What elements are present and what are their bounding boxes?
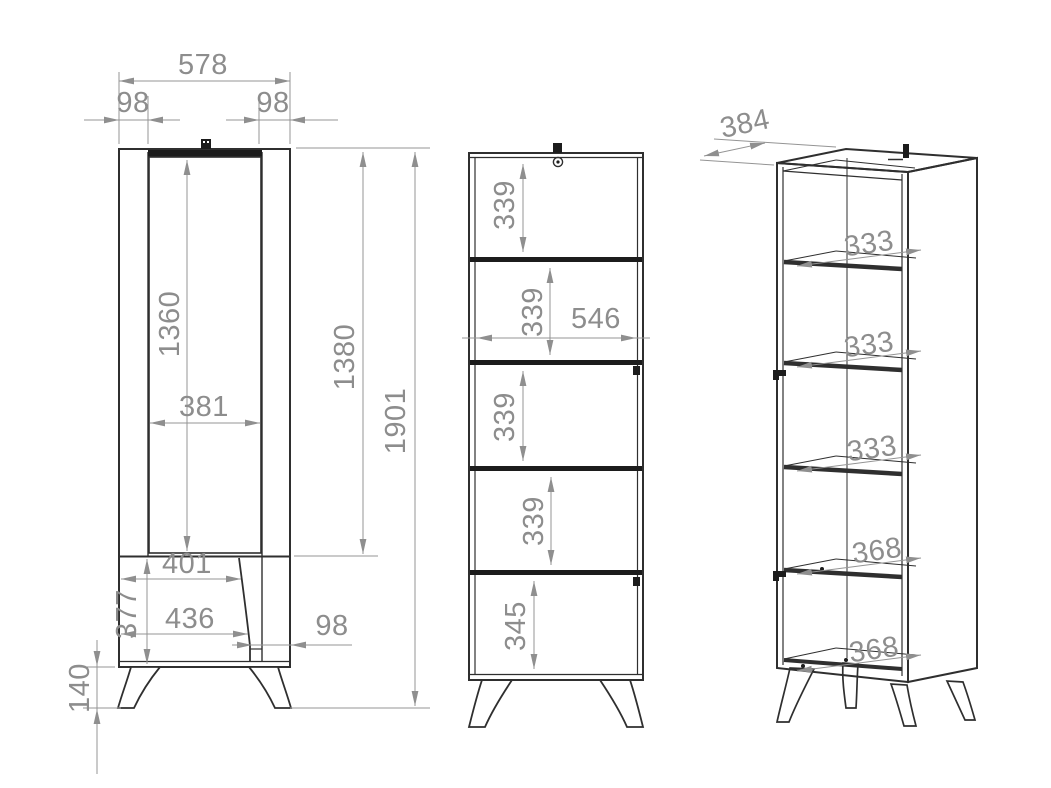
- dim-perspective-shelf-gap-3: 333: [845, 430, 899, 469]
- front-wall-bracket-icon: [201, 139, 211, 149]
- perspective-carcass: [773, 144, 977, 682]
- dim-section-gap-4: 339: [518, 496, 550, 546]
- dim-section-gap-3: 339: [489, 392, 521, 442]
- front-view: 578 98 98 1360 381 1380 1901 401 377 436…: [64, 49, 430, 774]
- shelf-pin-dot: [844, 658, 848, 662]
- dim-front-lower-height: 377: [111, 589, 143, 639]
- dim-front-right-offset: 98: [256, 87, 289, 119]
- dim-front-total-height: 1901: [380, 388, 412, 455]
- perspective-view: 384 333 333 333 368 368: [700, 103, 977, 726]
- section-wall-bracket-icon: [553, 143, 563, 167]
- section-shelf-3: [470, 466, 642, 471]
- section-hinge-plate-upper: [633, 366, 640, 375]
- dim-front-lower-outer-width: 436: [165, 603, 215, 635]
- front-right-leg: [249, 667, 291, 708]
- section-hinge-plate-lower: [633, 577, 640, 586]
- dim-front-left-offset: 98: [116, 87, 149, 119]
- section-shelf-4: [470, 570, 642, 575]
- shelf-pin-dot: [801, 664, 805, 668]
- dim-front-door-height: 1360: [154, 291, 186, 358]
- dim-front-lower-right-offset: 98: [315, 610, 348, 642]
- dim-perspective-shelf-gap-2: 333: [842, 326, 896, 365]
- perspective-legs: [777, 663, 975, 726]
- section-view: 339 339 546 339 339 345: [462, 143, 650, 727]
- drawing-canvas: 578 98 98 1360 381 1380 1901 401 377 436…: [0, 0, 1051, 788]
- section-left-leg: [469, 680, 512, 727]
- section-shelf-2: [470, 360, 642, 365]
- dim-section-gap-2: 339: [517, 287, 549, 337]
- dim-section-gap-1: 339: [489, 180, 521, 230]
- front-door-top-rail: [148, 150, 262, 157]
- section-right-leg: [600, 680, 643, 727]
- dim-perspective-shelf-gap-1: 333: [842, 225, 896, 264]
- dim-front-leg-height: 140: [64, 663, 96, 713]
- dim-perspective-lower-gap-2: 368: [847, 631, 901, 670]
- front-left-leg: [118, 667, 160, 708]
- perspective-dimension-lines: [700, 139, 921, 671]
- technical-drawing: 578 98 98 1360 381 1380 1901 401 377 436…: [0, 0, 1051, 788]
- dim-front-upper-height: 1380: [329, 324, 361, 391]
- dim-section-bottom-gap: 345: [500, 601, 532, 651]
- perspective-hinge-hook-upper: [773, 370, 786, 380]
- dim-front-lower-inner-width: 401: [162, 548, 212, 580]
- dim-section-inner-width: 546: [571, 303, 621, 335]
- dim-front-total-width: 578: [178, 49, 228, 81]
- section-shelf-1: [470, 257, 642, 262]
- front-lower-door-open-edge: [239, 558, 250, 661]
- perspective-hinge-hook-lower: [773, 571, 786, 581]
- dim-front-door-width: 381: [179, 391, 229, 423]
- dim-perspective-depth: 384: [717, 103, 772, 145]
